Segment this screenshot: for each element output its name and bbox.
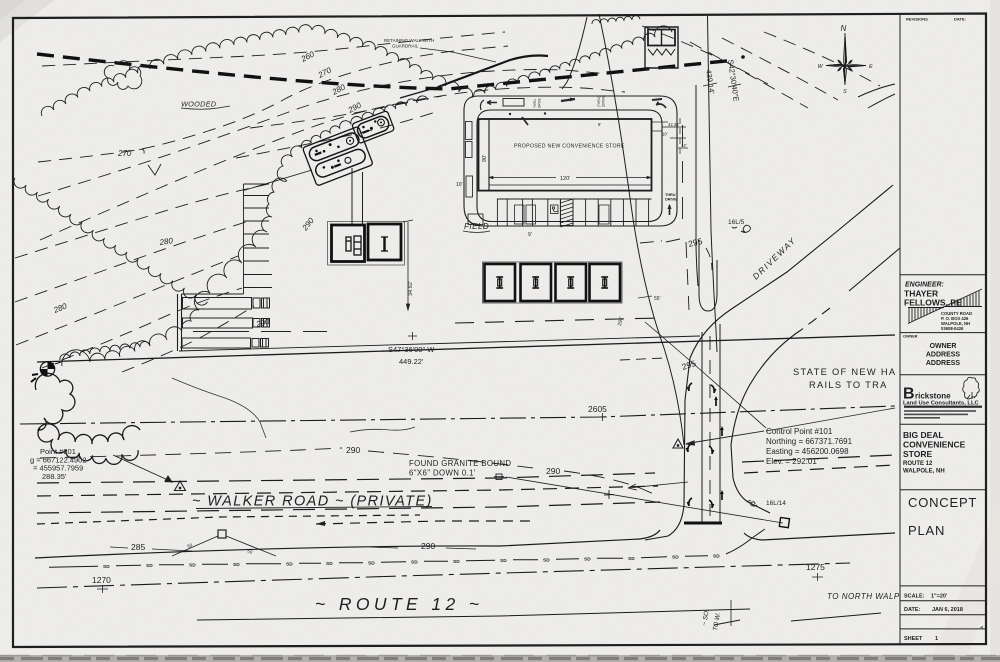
svg-text:W: W bbox=[818, 64, 824, 70]
svg-text:THRU: THRU bbox=[665, 193, 676, 197]
svg-text:14': 14' bbox=[681, 143, 687, 148]
svg-text:SD: SD bbox=[453, 559, 460, 565]
svg-text:SD: SD bbox=[146, 563, 153, 569]
svg-text:PROPOSED NEW CONVENIENCE ST: PROPOSED NEW CONVENIENCE STORE bbox=[514, 144, 625, 150]
svg-text:SD: SD bbox=[543, 557, 550, 563]
svg-text:N: N bbox=[841, 24, 847, 33]
svg-text:285: 285 bbox=[131, 542, 145, 552]
svg-text:2605: 2605 bbox=[588, 404, 607, 414]
svg-text:Elev. = 292.01': Elev. = 292.01' bbox=[766, 457, 819, 466]
svg-text:STORE: STORE bbox=[903, 449, 932, 459]
svg-text:rickstone: rickstone bbox=[915, 392, 951, 401]
svg-text:90': 90' bbox=[482, 155, 488, 162]
svg-text:9': 9' bbox=[528, 232, 532, 238]
svg-text:Easting = 456200.0698: Easting = 456200.0698 bbox=[766, 447, 849, 456]
svg-text:SHEET: SHEET bbox=[904, 636, 923, 642]
svg-text:SCALE:: SCALE: bbox=[904, 594, 925, 600]
svg-text:SD: SD bbox=[411, 559, 418, 565]
svg-text:449.22': 449.22' bbox=[399, 357, 424, 366]
svg-text:ADDRESS: ADDRESS bbox=[926, 360, 961, 367]
svg-text:120': 120' bbox=[560, 176, 570, 182]
svg-text:42.38': 42.38' bbox=[668, 122, 679, 127]
svg-text:16L/5: 16L/5 bbox=[728, 219, 745, 226]
svg-text:REVISIONS: REVISIONS bbox=[906, 17, 928, 22]
svg-text:DATE:: DATE: bbox=[954, 17, 966, 22]
svg-text:(THRU): (THRU) bbox=[597, 96, 601, 107]
svg-text:6"X6" DOWN 0.1': 6"X6" DOWN 0.1' bbox=[409, 469, 476, 478]
svg-text:DATE:: DATE: bbox=[904, 607, 921, 613]
svg-text:Northing = 667371.7691: Northing = 667371.7691 bbox=[766, 437, 853, 446]
svg-text:JAN 6, 2018: JAN 6, 2018 bbox=[932, 607, 963, 613]
svg-text:THRU: THRU bbox=[533, 98, 537, 108]
svg-text:SD: SD bbox=[286, 561, 293, 567]
svg-text:SD: SD bbox=[189, 562, 196, 568]
svg-text:WALPOLE, NH: WALPOLE, NH bbox=[903, 469, 945, 475]
svg-text:SD: SD bbox=[368, 560, 375, 566]
svg-text:WOODED: WOODED bbox=[181, 100, 217, 109]
svg-text:~ ROUTE 12 ~: ~ ROUTE 12 ~ bbox=[315, 594, 484, 614]
svg-text:RAILS TO TRA: RAILS TO TRA bbox=[809, 380, 888, 390]
svg-text:E: E bbox=[869, 64, 873, 70]
svg-text:OWNER: OWNER bbox=[903, 335, 918, 339]
svg-text:Control Point #101: Control Point #101 bbox=[766, 427, 833, 436]
svg-text:FOUND GRANITE BOUND: FOUND GRANITE BOUND bbox=[409, 459, 511, 468]
svg-text:RETAINING WALL WITH: RETAINING WALL WITH bbox=[384, 38, 434, 43]
svg-text:OWNER: OWNER bbox=[930, 343, 957, 350]
svg-text:GUARDRAIL: GUARDRAIL bbox=[392, 44, 419, 49]
svg-text:SD: SD bbox=[584, 556, 591, 562]
svg-text:16L/14: 16L/14 bbox=[766, 500, 786, 507]
svg-text:ENGINEER:: ENGINEER: bbox=[905, 282, 944, 289]
svg-text:10': 10' bbox=[456, 182, 463, 188]
svg-text:288.35': 288.35' bbox=[42, 472, 67, 481]
svg-text:FIELD: FIELD bbox=[464, 222, 489, 231]
svg-text:SD: SD bbox=[713, 553, 720, 559]
svg-text:SD: SD bbox=[672, 554, 679, 560]
svg-text:1270: 1270 bbox=[92, 575, 111, 585]
svg-text:PLAN: PLAN bbox=[908, 523, 945, 538]
svg-text:03608-0426: 03608-0426 bbox=[941, 326, 964, 331]
svg-text:SD: SD bbox=[103, 564, 110, 570]
svg-text:270: 270 bbox=[117, 149, 132, 158]
svg-text:SD: SD bbox=[326, 561, 333, 567]
svg-text:S47°36'00" W: S47°36'00" W bbox=[388, 345, 435, 354]
svg-text:CONVENIENCE: CONVENIENCE bbox=[903, 440, 966, 450]
svg-text:34.92': 34.92' bbox=[408, 281, 414, 296]
svg-text:STATE OF NEW HA: STATE OF NEW HA bbox=[793, 367, 896, 377]
svg-text:8': 8' bbox=[598, 122, 601, 127]
svg-text:DRIVE: DRIVE bbox=[665, 198, 677, 202]
svg-text:10': 10' bbox=[662, 132, 668, 137]
svg-text:S: S bbox=[843, 89, 847, 95]
svg-text:1: 1 bbox=[935, 636, 938, 642]
svg-text:TO NORTH WALP: TO NORTH WALP bbox=[827, 592, 900, 601]
svg-text:55': 55' bbox=[654, 296, 661, 302]
svg-text:ADDRESS: ADDRESS bbox=[926, 352, 961, 359]
svg-text:ROUTE 12: ROUTE 12 bbox=[903, 461, 933, 467]
svg-text:290: 290 bbox=[346, 445, 360, 455]
svg-text:290: 290 bbox=[546, 466, 560, 476]
svg-text:BIG DEAL: BIG DEAL bbox=[903, 430, 944, 440]
svg-text:SD: SD bbox=[233, 562, 240, 568]
svg-text:1"=20': 1"=20' bbox=[931, 594, 948, 600]
svg-text:290: 290 bbox=[421, 541, 435, 551]
svg-text:(DRIVE): (DRIVE) bbox=[602, 95, 606, 107]
svg-text:CONCEPT: CONCEPT bbox=[908, 495, 977, 510]
svg-text:SD: SD bbox=[628, 556, 635, 562]
svg-text:DRIVE: DRIVE bbox=[538, 98, 542, 108]
svg-text:SD: SD bbox=[500, 558, 507, 564]
